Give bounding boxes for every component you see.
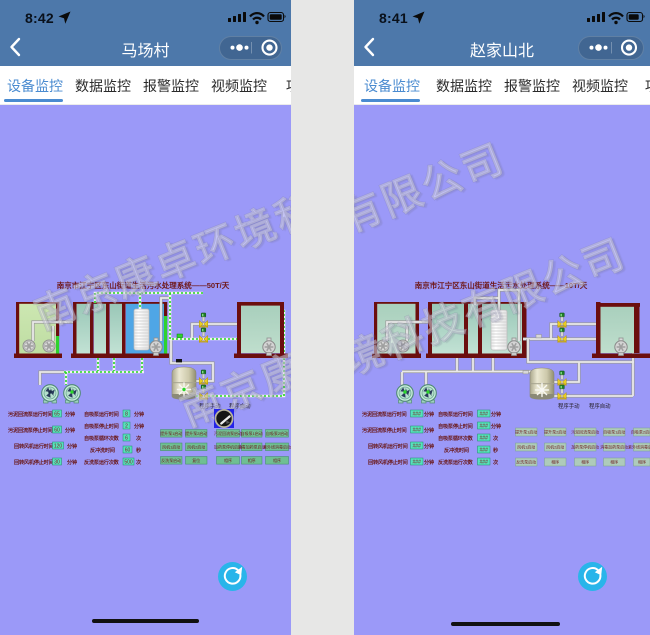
svg-text:风机1启动: 风机1启动 bbox=[517, 444, 535, 450]
svg-text:相序: 相序 bbox=[638, 459, 646, 465]
svg-text:分钟: 分钟 bbox=[424, 458, 434, 466]
svg-text:次: 次 bbox=[136, 434, 142, 442]
svg-text:自吸泵运行时间: 自吸泵运行时间 bbox=[438, 410, 473, 418]
svg-text:回转风机停止时间: 回转风机停止时间 bbox=[14, 458, 54, 466]
svg-text:60: 60 bbox=[125, 448, 131, 454]
svg-text:###: ### bbox=[480, 436, 489, 442]
svg-text:消毒加药泵启动: 消毒加药泵启动 bbox=[600, 444, 628, 450]
svg-text:提升泵2启动: 提升泵2启动 bbox=[544, 429, 566, 435]
svg-text:###: ### bbox=[480, 424, 489, 430]
svg-text:消毒加药泵启动: 消毒加药泵启动 bbox=[238, 443, 266, 449]
svg-text:自吸泵循环次数: 自吸泵循环次数 bbox=[84, 434, 120, 442]
svg-text:分钟: 分钟 bbox=[67, 458, 77, 466]
svg-text:500: 500 bbox=[124, 460, 133, 466]
svg-text:反洗泵启动: 反洗泵启动 bbox=[516, 459, 536, 465]
svg-text:自吸泵停止时间: 自吸泵停止时间 bbox=[438, 422, 473, 430]
svg-text:###: ### bbox=[413, 460, 422, 466]
svg-text:分钟: 分钟 bbox=[65, 410, 75, 418]
svg-text:风机2启动: 风机2启动 bbox=[546, 444, 564, 450]
svg-text:分钟: 分钟 bbox=[424, 410, 434, 418]
svg-text:相序: 相序 bbox=[273, 457, 281, 463]
svg-text:分钟: 分钟 bbox=[424, 426, 434, 434]
svg-text:###: ### bbox=[480, 460, 489, 466]
svg-text:次: 次 bbox=[493, 434, 499, 442]
svg-text:回转风机运行时间: 回转风机运行时间 bbox=[14, 442, 54, 450]
svg-text:风机1启动: 风机1启动 bbox=[162, 443, 180, 449]
svg-text:复位: 复位 bbox=[192, 457, 200, 463]
svg-text:6: 6 bbox=[125, 436, 128, 442]
svg-text:污泥回流泵停止时间: 污泥回流泵停止时间 bbox=[8, 426, 53, 434]
svg-text:相序: 相序 bbox=[224, 457, 232, 463]
svg-text:分钟: 分钟 bbox=[67, 442, 77, 450]
svg-text:程序手动: 程序手动 bbox=[558, 402, 580, 410]
svg-text:秒: 秒 bbox=[136, 446, 142, 454]
svg-text:紫外线消毒启动: 紫外线消毒启动 bbox=[263, 443, 291, 449]
svg-text:反洗泵运行次数: 反洗泵运行次数 bbox=[84, 458, 120, 466]
svg-text:120: 120 bbox=[54, 444, 63, 450]
svg-text:###: ### bbox=[480, 412, 489, 418]
svg-text:分钟: 分钟 bbox=[424, 442, 434, 450]
svg-text:相序: 相序 bbox=[248, 457, 256, 463]
svg-text:自吸泵1启动: 自吸泵1启动 bbox=[603, 429, 625, 435]
svg-text:提升泵1启动: 提升泵1启动 bbox=[515, 429, 537, 435]
svg-text:提升泵1启动: 提升泵1启动 bbox=[160, 430, 182, 436]
svg-text:反冲洗时间: 反冲洗时间 bbox=[444, 446, 469, 454]
svg-text:自吸泵2启动: 自吸泵2启动 bbox=[266, 430, 288, 436]
svg-text:###: ### bbox=[480, 448, 489, 454]
svg-text:提升泵2启动: 提升泵2启动 bbox=[185, 430, 207, 436]
svg-text:相序: 相序 bbox=[610, 459, 618, 465]
svg-text:反冲洗时间: 反冲洗时间 bbox=[90, 446, 115, 454]
svg-text:8: 8 bbox=[125, 412, 128, 418]
svg-text:次: 次 bbox=[493, 458, 499, 466]
svg-text:###: ### bbox=[413, 428, 422, 434]
svg-text:污泥回流泵停止时间: 污泥回流泵停止时间 bbox=[362, 426, 407, 434]
svg-text:南京市江宁区东山街道生活污水处理系统——50T/天: 南京市江宁区东山街道生活污水处理系统——50T/天 bbox=[57, 280, 230, 290]
svg-text:污泥回流泵启动: 污泥回流泵启动 bbox=[214, 430, 242, 436]
svg-text:回转风机停止时间: 回转风机停止时间 bbox=[368, 458, 408, 466]
svg-text:分钟: 分钟 bbox=[65, 426, 75, 434]
svg-text:回转风机运行时间: 回转风机运行时间 bbox=[368, 442, 408, 450]
svg-text:污泥回流泵运行时间: 污泥回流泵运行时间 bbox=[362, 410, 407, 418]
svg-text:65: 65 bbox=[54, 412, 60, 418]
svg-text:次: 次 bbox=[136, 458, 142, 466]
svg-text:程序自动: 程序自动 bbox=[589, 402, 611, 410]
svg-text:秒: 秒 bbox=[493, 446, 499, 454]
svg-text:加药泵停机启动: 加药泵停机启动 bbox=[571, 444, 599, 450]
svg-text:污泥回流泵启动: 污泥回流泵启动 bbox=[571, 429, 599, 435]
svg-text:自吸泵1启动: 自吸泵1启动 bbox=[241, 430, 263, 436]
svg-text:2: 2 bbox=[125, 424, 128, 430]
svg-text:反洗泵启动: 反洗泵启动 bbox=[161, 457, 181, 463]
svg-text:30: 30 bbox=[54, 460, 60, 466]
svg-text:自吸泵停止时间: 自吸泵停止时间 bbox=[84, 422, 119, 430]
svg-text:分钟: 分钟 bbox=[491, 422, 501, 430]
svg-text:分钟: 分钟 bbox=[134, 410, 144, 418]
svg-text:风机2启动: 风机2启动 bbox=[187, 443, 205, 449]
svg-text:自吸泵运行时间: 自吸泵运行时间 bbox=[84, 410, 119, 418]
svg-text:分钟: 分钟 bbox=[134, 422, 144, 430]
svg-text:分钟: 分钟 bbox=[491, 410, 501, 418]
svg-text:自吸泵2启动: 自吸泵2启动 bbox=[631, 429, 650, 435]
svg-text:###: ### bbox=[413, 412, 422, 418]
svg-text:###: ### bbox=[413, 444, 422, 450]
svg-text:相序: 相序 bbox=[581, 459, 589, 465]
svg-text:相序: 相序 bbox=[551, 459, 559, 465]
svg-text:紫外线消毒启动: 紫外线消毒启动 bbox=[628, 444, 650, 450]
svg-text:污泥回流泵运行时间: 污泥回流泵运行时间 bbox=[8, 410, 53, 418]
svg-text:60: 60 bbox=[54, 428, 60, 434]
svg-text:自吸泵循环次数: 自吸泵循环次数 bbox=[438, 434, 474, 442]
svg-text:反洗泵运行次数: 反洗泵运行次数 bbox=[438, 458, 474, 466]
